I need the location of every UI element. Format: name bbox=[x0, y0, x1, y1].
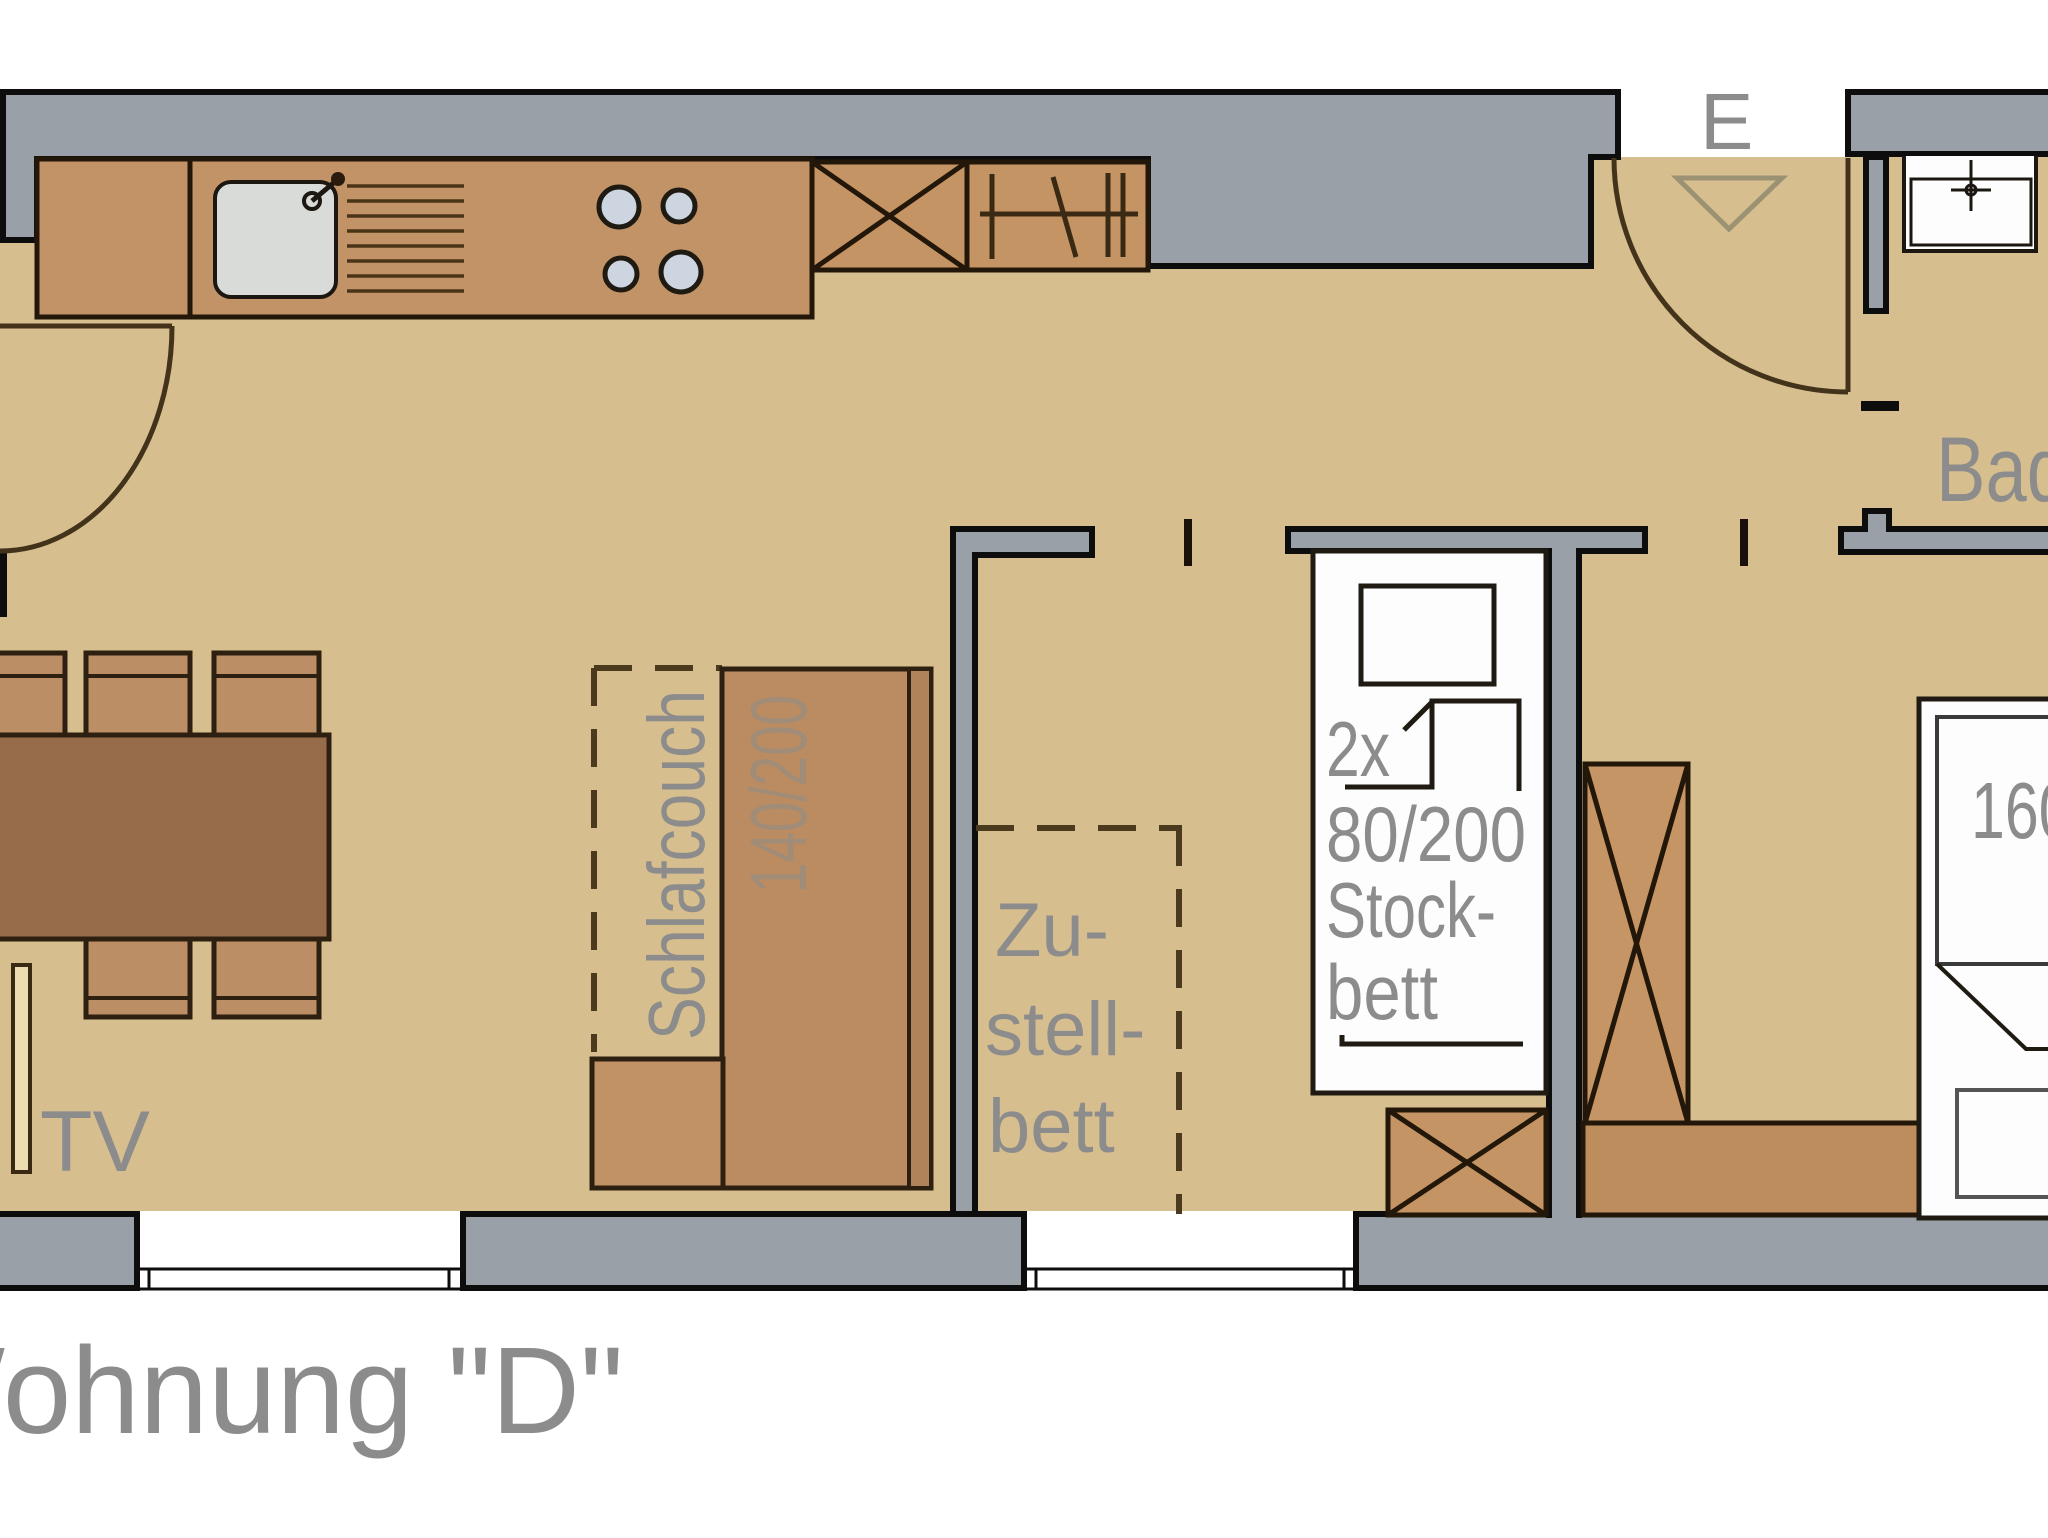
svg-text:Zu-: Zu- bbox=[995, 888, 1109, 973]
svg-text:TV: TV bbox=[40, 1094, 150, 1190]
svg-text:Wohnung "D": Wohnung "D" bbox=[0, 1323, 624, 1460]
svg-text:stell-: stell- bbox=[985, 987, 1145, 1072]
svg-text:Bad: Bad bbox=[1936, 419, 2048, 521]
svg-text:80/200: 80/200 bbox=[1326, 790, 1526, 878]
svg-text:160/200: 160/200 bbox=[1971, 766, 2048, 855]
svg-text:bett: bett bbox=[988, 1084, 1115, 1169]
svg-text:E: E bbox=[1700, 77, 1753, 166]
svg-text:bett: bett bbox=[1326, 948, 1438, 1036]
svg-text:Schlafcouch: Schlafcouch bbox=[632, 690, 721, 1040]
svg-text:2x: 2x bbox=[1326, 705, 1390, 793]
svg-text:Stock-: Stock- bbox=[1326, 866, 1496, 954]
svg-text:140/200: 140/200 bbox=[734, 695, 823, 893]
